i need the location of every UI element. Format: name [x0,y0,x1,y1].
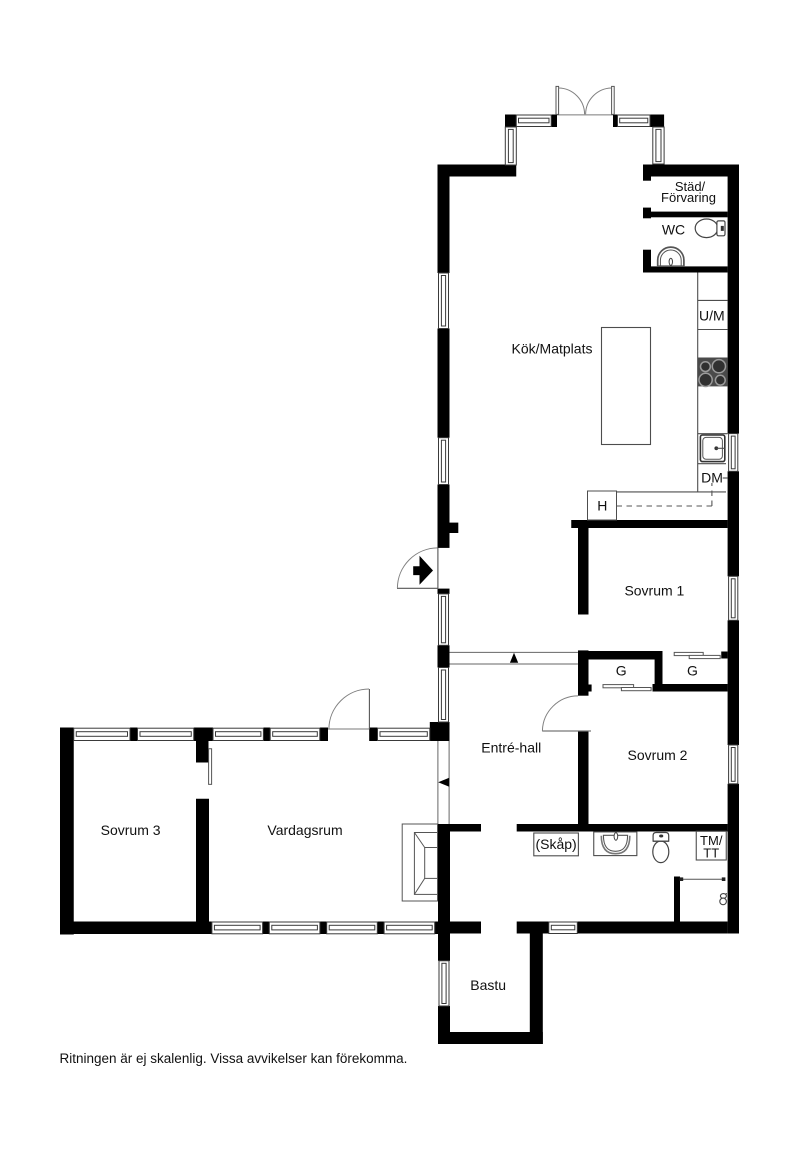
svg-text:Sovrum 1: Sovrum 1 [624,583,684,599]
svg-text:WC: WC [662,222,685,238]
svg-text:Bastu: Bastu [470,977,506,993]
svg-text:Förvaring: Förvaring [661,190,716,205]
svg-text:Kök/Matplats: Kök/Matplats [512,341,593,357]
svg-text:G: G [616,662,627,678]
svg-text:(Skåp): (Skåp) [535,836,576,852]
svg-text:Sovrum 2: Sovrum 2 [628,747,688,763]
svg-text:TT: TT [703,846,719,861]
svg-text:Ritningen är ej skalenlig. Vis: Ritningen är ej skalenlig. Vissa avvikel… [60,1051,408,1066]
svg-text:Entré-hall: Entré-hall [481,740,541,756]
svg-text:G: G [687,662,698,678]
svg-text:Vardagsrum: Vardagsrum [267,822,342,838]
svg-text:DM: DM [701,469,723,485]
svg-text:Sovrum 3: Sovrum 3 [101,822,161,838]
svg-text:H: H [597,498,607,514]
svg-text:U/M: U/M [699,308,725,324]
